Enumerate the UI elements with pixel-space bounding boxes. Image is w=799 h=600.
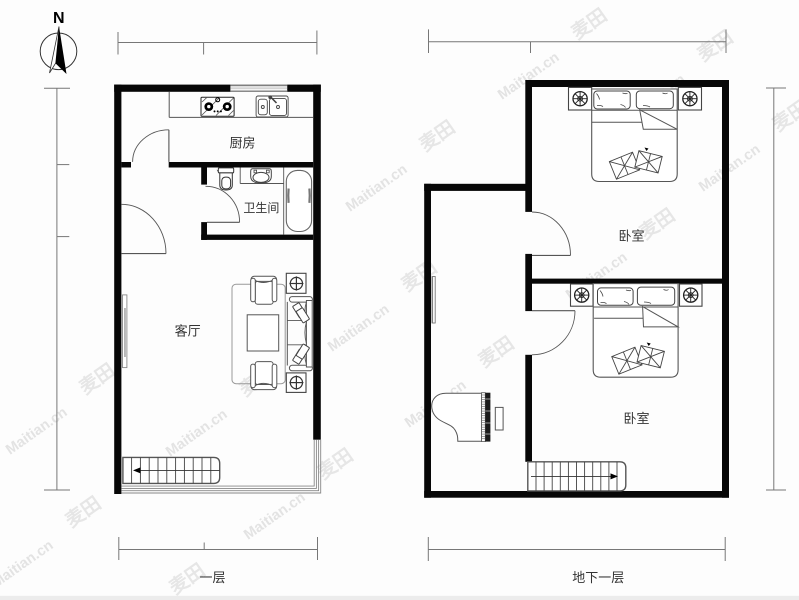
svg-text:卧室: 卧室 bbox=[624, 411, 650, 426]
svg-text:客厅: 客厅 bbox=[175, 323, 201, 338]
svg-text:卫生间: 卫生间 bbox=[243, 201, 279, 215]
svg-text:厨房: 厨房 bbox=[230, 136, 256, 151]
svg-text:一层: 一层 bbox=[200, 570, 226, 585]
svg-text:N: N bbox=[53, 10, 65, 27]
svg-text:卧室: 卧室 bbox=[619, 229, 645, 244]
svg-text:地下一层: 地下一层 bbox=[572, 570, 624, 585]
